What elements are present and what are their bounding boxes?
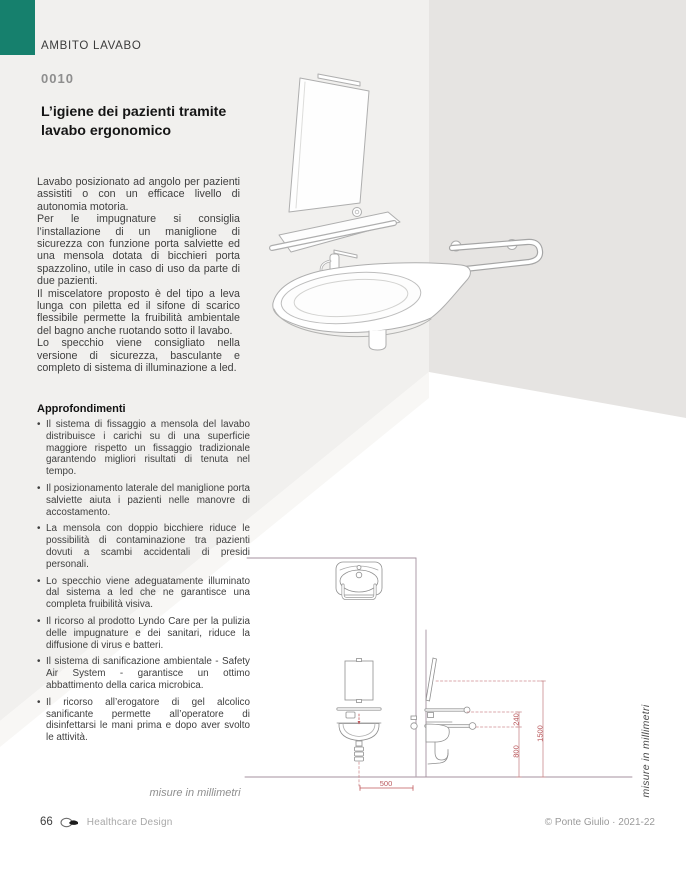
insight-item: Il sistema di sanificazione ambientale -… (37, 656, 250, 691)
side-elevation (426, 658, 476, 764)
insight-item: Lo specchio viene adeguatamente illumina… (37, 576, 250, 611)
insight-item: Il posizionamento laterale del maniglion… (37, 483, 250, 518)
page-number: 66 (40, 816, 53, 828)
plan-view (336, 562, 382, 599)
insights-heading: Approfondimenti (37, 403, 126, 415)
tech-wall-lines (245, 558, 632, 777)
insights-list: Il sistema di fissaggio a mensola del la… (37, 419, 250, 749)
dimension-240: 240 (512, 702, 521, 738)
shelf-wall-flange (353, 208, 362, 217)
teal-corner-block (0, 0, 35, 55)
intro-paragraph: Per le impugnature si consiglia l’instal… (37, 213, 240, 287)
sink-drain (369, 330, 386, 350)
dimension-500: 500 (370, 779, 402, 788)
intro-paragraph: Il miscelatore proposto è del tipo a lev… (37, 288, 240, 338)
copyright: © Ponte Giulio · 2021-22 (545, 817, 655, 828)
technical-drawing (245, 558, 632, 791)
page-title: L’igiene dei pazienti tramite lavabo erg… (41, 103, 263, 140)
units-caption: misure in millimetri (140, 787, 250, 799)
insight-item: Il sistema di fissaggio a mensola del la… (37, 419, 250, 478)
intro-text: Lavabo posizionato ad angolo per pazient… (37, 176, 240, 375)
intro-paragraph: Lo specchio viene consigliato nella vers… (37, 337, 240, 374)
intro-paragraph: Lavabo posizionato ad angolo per pazient… (37, 176, 240, 213)
dimension-1500: 1500 (536, 714, 545, 754)
section-label: AMBITO LAVABO (41, 40, 142, 52)
catalog-page: AMBITO LAVABO 0010 L’igiene dei pazienti… (0, 0, 697, 875)
front-elevation (337, 659, 417, 762)
units-caption-vertical: misure in millimetri (640, 691, 652, 811)
product-code: 0010 (41, 71, 74, 86)
insight-item: La mensola con doppio bicchiere riduce l… (37, 523, 250, 570)
brand-label: Healthcare Design (87, 817, 173, 828)
insight-item: Il ricorso all’erogatore di gel alcolico… (37, 697, 250, 744)
footer-left: 66 Healthcare Design (40, 816, 172, 828)
dimension-800: 800 (512, 734, 521, 770)
ponte-giulio-logo-icon (60, 817, 80, 828)
insight-item: Il ricorso al prodotto Lyndo Care per la… (37, 616, 250, 651)
